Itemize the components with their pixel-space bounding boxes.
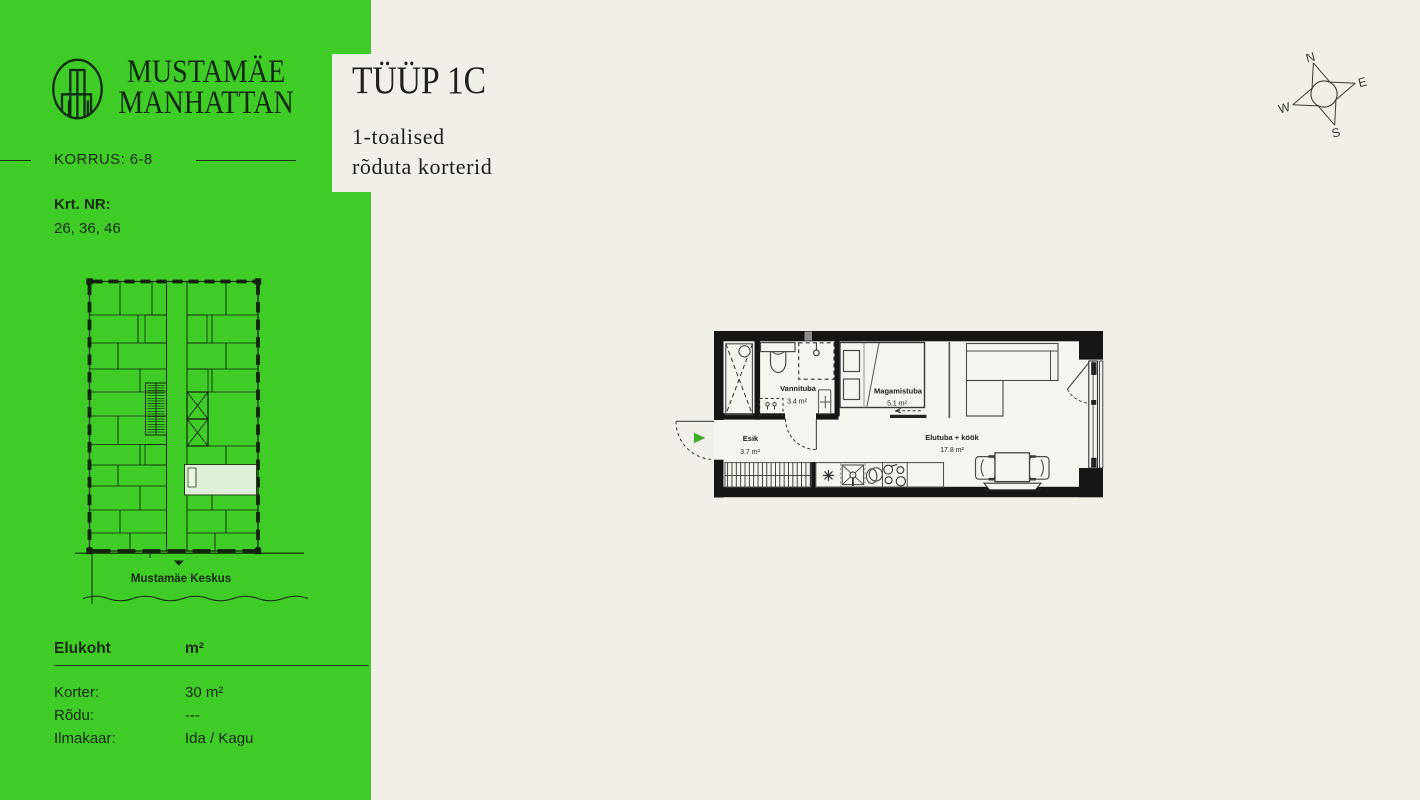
svg-text:Magamistuba: Magamistuba (874, 387, 923, 396)
svg-text:5.1 m²: 5.1 m² (887, 401, 908, 408)
svg-text:Esik: Esik (743, 434, 759, 443)
svg-text:E: E (1357, 75, 1369, 91)
svg-text:N: N (1304, 50, 1316, 66)
svg-text:17.8 m²: 17.8 m² (940, 447, 964, 454)
svg-text:3.4 m²: 3.4 m² (787, 398, 808, 405)
svg-text:W: W (1277, 100, 1292, 117)
svg-text:S: S (1330, 125, 1342, 141)
svg-text:3.7 m²: 3.7 m² (740, 449, 761, 456)
svg-text:Elutuba + köök: Elutuba + köök (925, 433, 979, 442)
svg-text:Vannituba: Vannituba (780, 384, 817, 393)
